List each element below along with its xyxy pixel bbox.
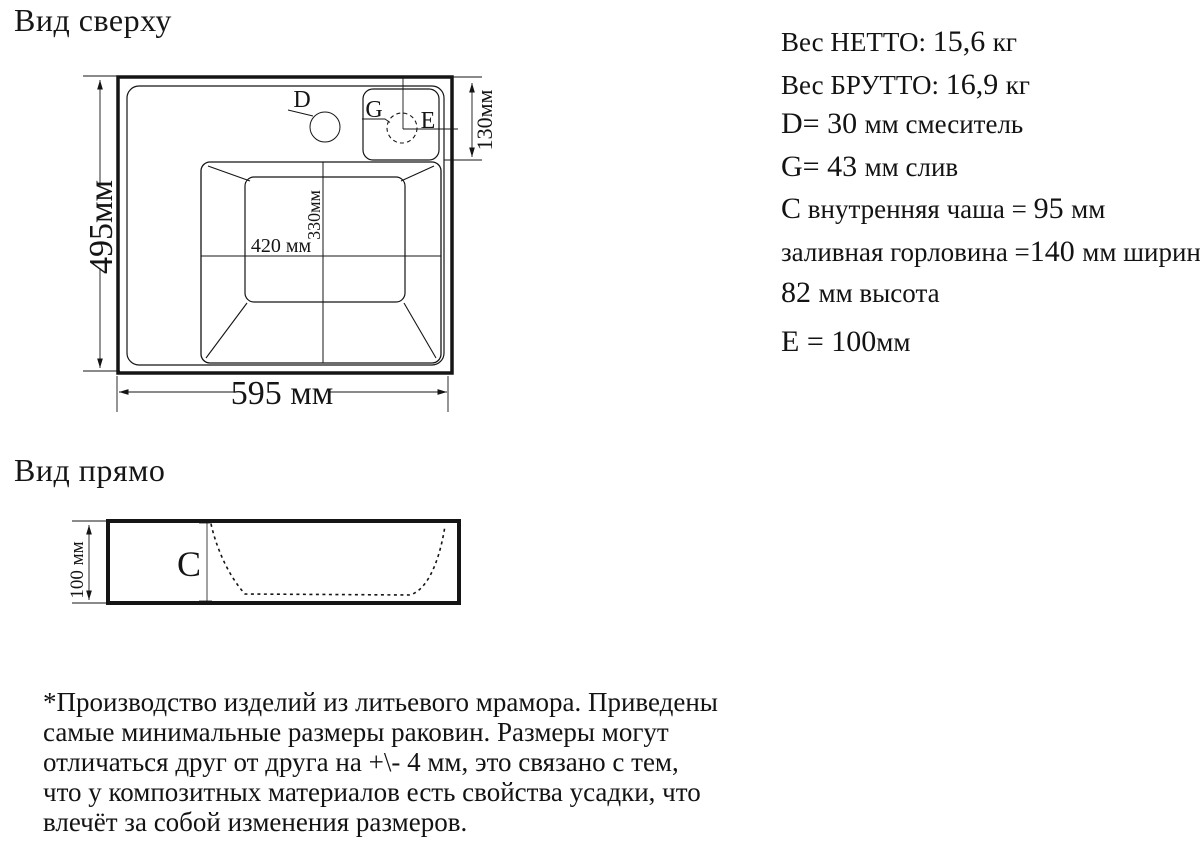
spec-line: 82 мм высота — [781, 274, 940, 312]
spec-text: мм — [876, 327, 910, 357]
footer-line: *Производство изделий из литьевого мрамо… — [43, 687, 703, 717]
spec-text: мм ширина, — [1082, 237, 1200, 267]
edge-offset-label: E — [421, 108, 436, 134]
spec-text: внутренняя чаша = — [801, 194, 1034, 224]
front-body-outline — [108, 521, 459, 603]
spec-text: 16,9 — [946, 68, 1006, 101]
bowl-depth-label: C — [177, 544, 201, 584]
drain-hole — [387, 113, 417, 143]
dim-bowl-width-label: 420 мм — [251, 235, 312, 257]
drain-label: G — [365, 97, 382, 123]
spec-text: кг — [1006, 70, 1030, 100]
spec-text: G= 43 — [781, 150, 865, 183]
dim-offset-label: 130мм — [472, 90, 497, 151]
spec-text: C — [781, 192, 801, 225]
footer-line: отличаться друг от друга на +\- 4 мм, эт… — [43, 747, 703, 777]
faucet-hole — [310, 112, 340, 142]
spec-text: 140 — [1030, 235, 1083, 268]
dim-bowl-height-label: 330мм — [304, 190, 324, 240]
dim-width-label: 595 мм — [231, 375, 334, 412]
faucet-label: D — [293, 87, 310, 113]
spec-line: C внутренняя чаша = 95 мм — [781, 190, 1105, 228]
footer-note: *Производство изделий из литьевого мрамо… — [43, 687, 703, 837]
spec-text: заливная горловина = — [781, 237, 1030, 267]
spec-line: Вес БРУТТО: 16,9 кг — [781, 66, 1030, 104]
technical-drawing-page: Вид сверху Вид прямо — [0, 0, 1200, 849]
spec-text: кг — [993, 27, 1017, 57]
spec-line: заливная горловина =140 мм ширина, — [781, 233, 1200, 271]
footer-line: что у композитных материалов есть свойст… — [43, 777, 703, 807]
spec-text: Вес БРУТТО: — [781, 70, 946, 100]
bowl-profile-dashed — [211, 524, 445, 595]
footer-line: самые минимальные размеры раковин. Разме… — [43, 717, 703, 747]
spec-line: E = 100мм — [781, 323, 910, 361]
spec-text: 95 — [1034, 192, 1072, 225]
spec-text: Вес НЕТТО: — [781, 27, 933, 57]
sink-rim — [127, 86, 444, 365]
spec-line: Вес НЕТТО: 15,6 кг — [781, 23, 1017, 61]
spec-text: мм слив — [865, 152, 959, 182]
sink-outer-edge — [118, 77, 452, 373]
spec-text: мм высота — [819, 278, 940, 308]
spec-text: 15,6 — [933, 25, 993, 58]
dim-height-label: 495мм — [83, 180, 120, 274]
front-view-drawing — [72, 521, 459, 603]
spec-text: 82 — [781, 276, 819, 309]
spec-text: E = 100 — [781, 325, 876, 358]
spec-line: D= 30 мм смеситель — [781, 105, 1023, 143]
spec-line: G= 43 мм слив — [781, 148, 958, 186]
dim-front-height-label: 100 мм — [67, 541, 88, 598]
spec-text: мм — [1071, 194, 1105, 224]
spec-text: мм смеситель — [865, 109, 1024, 139]
spec-text: D= 30 — [781, 107, 865, 140]
footer-line: влечёт за собой изменения размеров. — [43, 807, 703, 837]
